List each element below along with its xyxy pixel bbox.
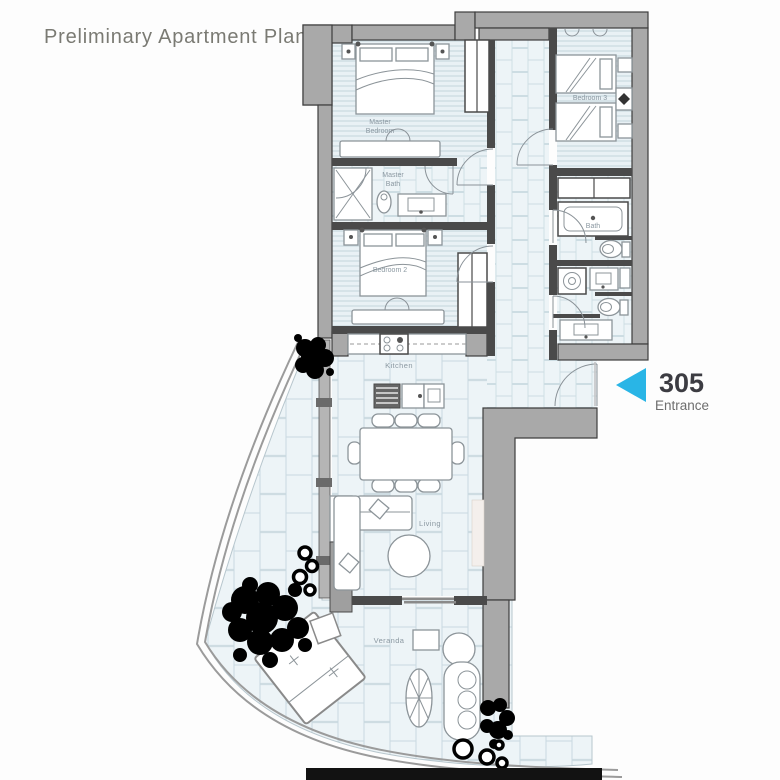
lamp [349,235,353,239]
kitchen-island [374,384,444,408]
curved-sofa [443,633,480,740]
coffee-table [388,535,430,577]
chair [372,414,394,427]
corridor-floor [495,40,549,356]
label-kitchen: Kitchen [385,361,413,370]
pillow [396,48,428,61]
sofa-chaise [334,496,360,590]
pillow [600,107,612,137]
entrance-marker: 305 Entrance [616,368,709,413]
floor-plan-svg: Master Bedroom Master Bath Bedroom 2 Bed… [0,0,780,780]
side-table [413,630,439,650]
label-master-bath-2: Bath [386,181,401,188]
label-master-bedroom-2: Bedroom [366,128,395,135]
lamp [441,50,445,54]
screenshot-root: Preliminary Apartment Plan [0,0,780,780]
lamp [433,235,437,239]
chair [451,442,464,464]
label-veranda: Veranda [374,636,405,645]
entry-l-wall [483,408,597,600]
label-bedroom2: Bedroom 2 [373,267,407,274]
pillow [364,234,392,246]
entrance-arrow-icon [616,368,646,402]
entrance-label: Entrance [655,398,709,413]
chair [395,479,417,492]
label-master-bedroom-1: Master [369,119,391,126]
bedside-shelf [618,124,632,138]
label-bath: Bath [586,223,601,230]
desk2 [352,310,444,324]
chair [348,442,361,464]
unit-number: 305 [659,368,704,398]
chair [395,414,417,427]
surfboard-table [406,669,432,727]
suite-hall-floor [455,158,487,222]
shelf [620,268,630,288]
toilet-1 [600,241,622,258]
label-living: Living [419,519,441,528]
washing-machine [558,268,586,294]
pillow [396,234,424,246]
cooktop [380,334,408,354]
chair [418,414,440,427]
chair [372,479,394,492]
label-bedroom3: Bedroom 3 [573,95,607,102]
column-strip [472,500,484,566]
dining-table [360,428,452,480]
vestibule-floor [487,356,597,408]
toilet-2 [598,299,620,316]
pillow [600,59,612,89]
lamp [347,50,351,54]
dresser-desk [340,141,440,157]
pillow [360,48,392,61]
label-master-bath-1: Master [382,172,404,179]
bedside-shelf [618,58,632,72]
bottom-edge-bar [306,768,602,780]
chair [418,479,440,492]
veranda-east-wall [483,600,509,708]
